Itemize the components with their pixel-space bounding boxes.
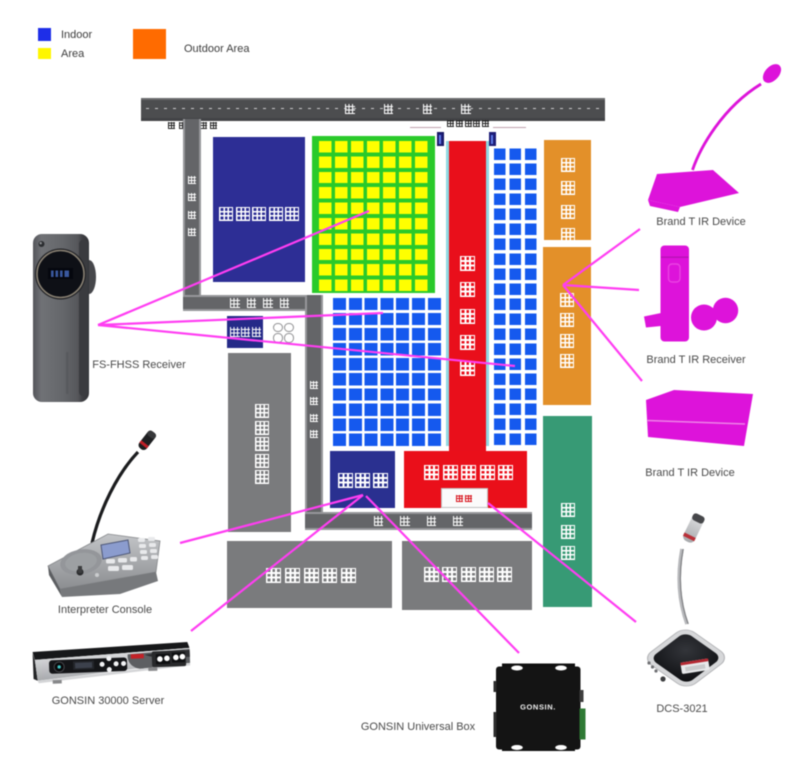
svg-text:GONSIN.: GONSIN. bbox=[520, 703, 556, 712]
